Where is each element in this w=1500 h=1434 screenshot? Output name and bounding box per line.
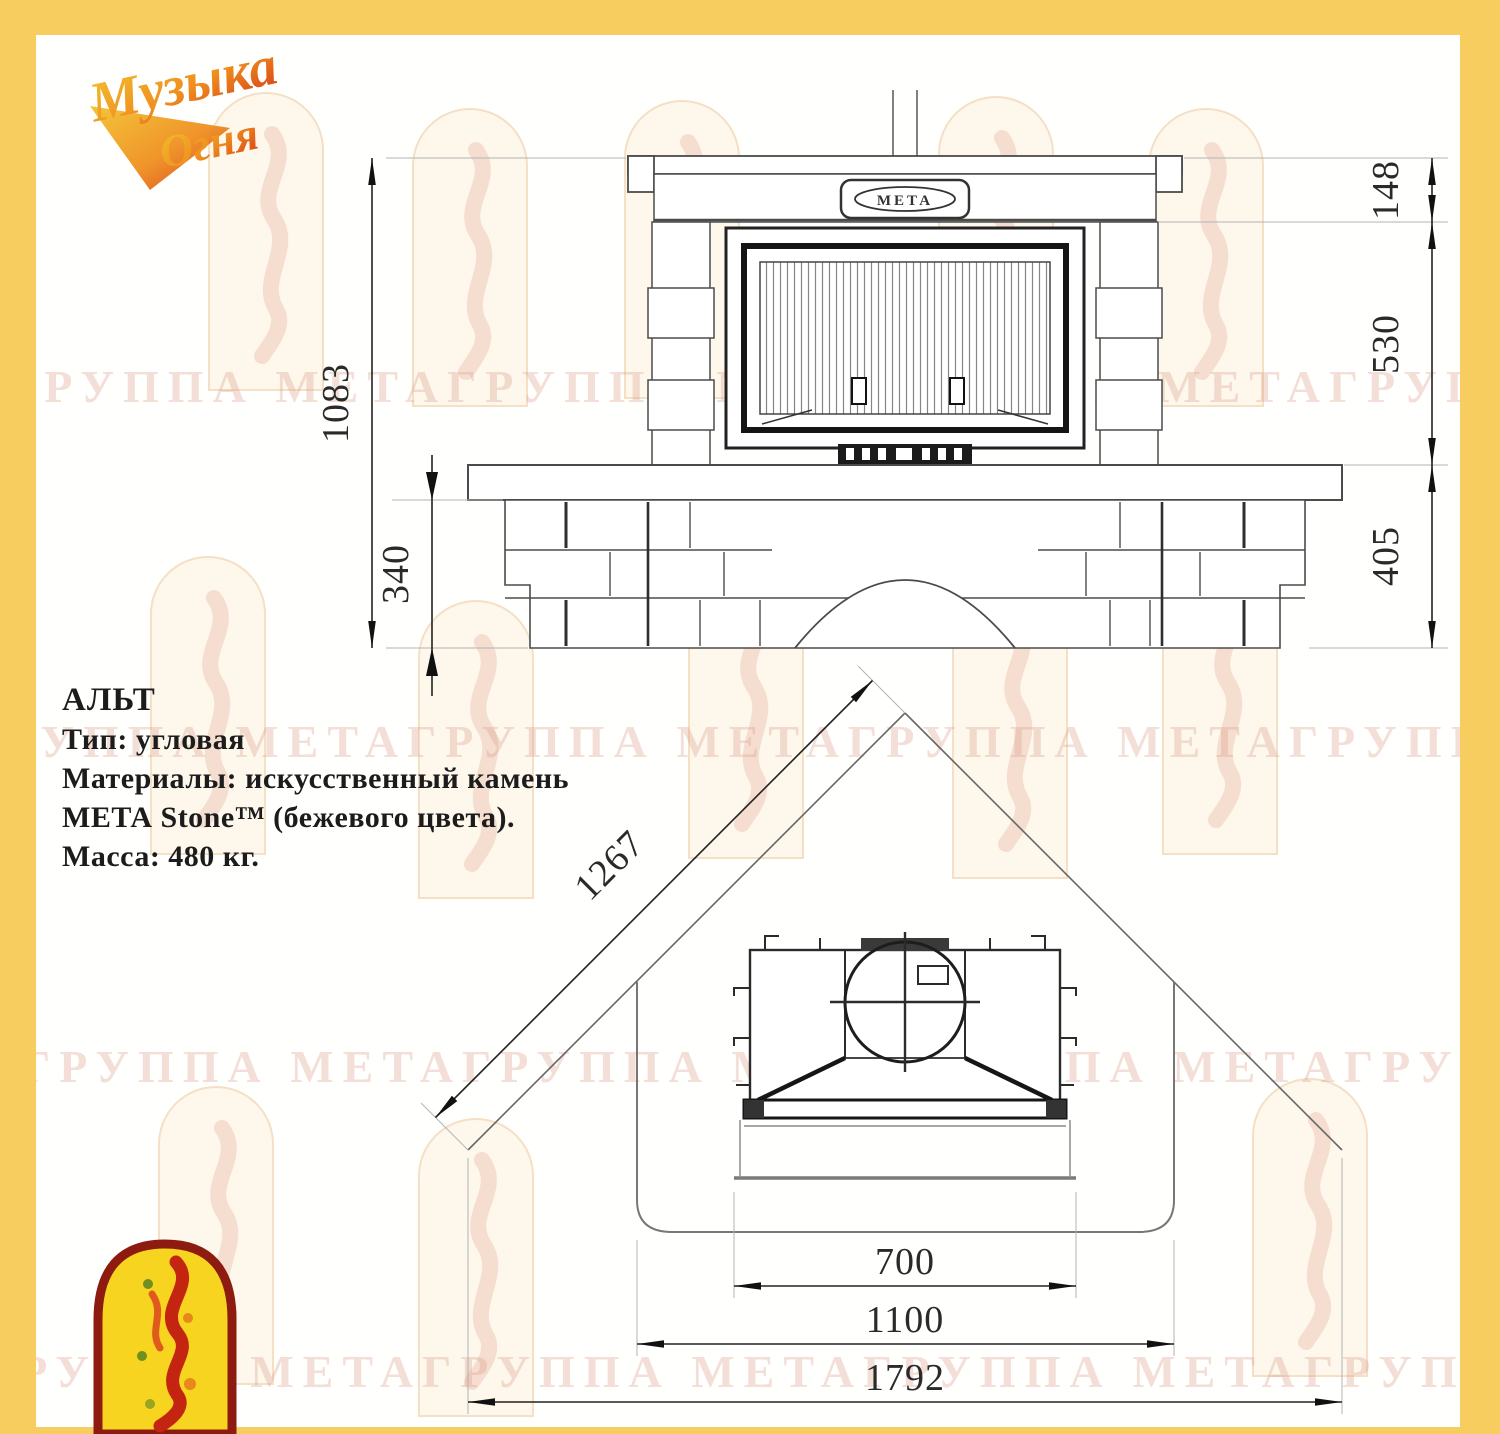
watermark-arch-icon bbox=[938, 96, 1054, 395]
watermark-arch-icon bbox=[1162, 556, 1278, 855]
watermark-arch-icon bbox=[624, 100, 740, 399]
watermark-text-row: ГРУППА МЕТАГРУППА МЕТАГРУППА МЕТАГРУППА … bbox=[36, 1345, 1460, 1398]
spec-material-2: МЕТА Stone™ (бежевого цвета). bbox=[62, 798, 722, 837]
watermark-arch-icon bbox=[418, 1118, 534, 1417]
watermark-text-row: ГРУППА МЕТАГРУППА МЕТАГРУППА МЕТАГРУППА … bbox=[36, 1040, 1460, 1093]
firebird-arch-emblem bbox=[90, 1234, 240, 1434]
watermark-arch-icon bbox=[1148, 108, 1264, 407]
spec-material-1: Материалы: искусственный камень bbox=[62, 759, 722, 798]
spec-block: АЛЬТ Тип: угловая Материалы: искусственн… bbox=[62, 680, 722, 876]
music-of-fire-logo: Музыка Огня bbox=[52, 40, 352, 235]
brochure-page: { "brand": { "logo_line1": "Музыка", "lo… bbox=[0, 0, 1500, 1427]
watermark-arch-icon bbox=[952, 580, 1068, 879]
watermark-arch-icon bbox=[1252, 1078, 1368, 1377]
spec-type: Тип: угловая bbox=[62, 720, 722, 759]
spec-mass: Масса: 480 кг. bbox=[62, 837, 722, 876]
watermark-arch-icon bbox=[412, 108, 528, 407]
watermark-text-row: ГРУППА МЕТАГРУППА МЕТАГРУППА МЕТАГРУППА … bbox=[36, 360, 1460, 413]
model-name: АЛЬТ bbox=[62, 680, 722, 720]
